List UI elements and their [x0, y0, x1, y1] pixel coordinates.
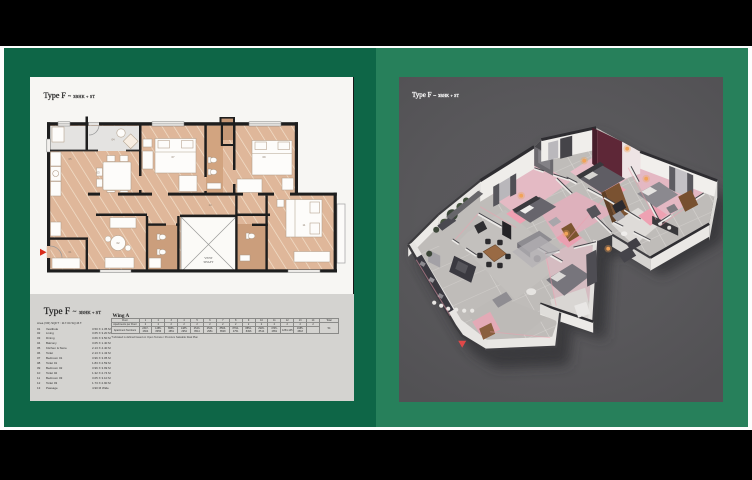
svg-text:11: 11	[303, 223, 306, 227]
svg-text:14: 14	[208, 203, 212, 207]
svg-text:04: 04	[111, 138, 115, 142]
svg-text:01: 01	[68, 250, 72, 254]
svg-text:SHAFT: SHAFT	[203, 260, 213, 264]
svg-text:02: 02	[116, 241, 120, 245]
svg-text:07: 07	[171, 155, 175, 159]
svg-text:05: 05	[68, 157, 72, 161]
svg-text:09: 09	[262, 155, 266, 159]
svg-text:03: 03	[96, 171, 100, 175]
